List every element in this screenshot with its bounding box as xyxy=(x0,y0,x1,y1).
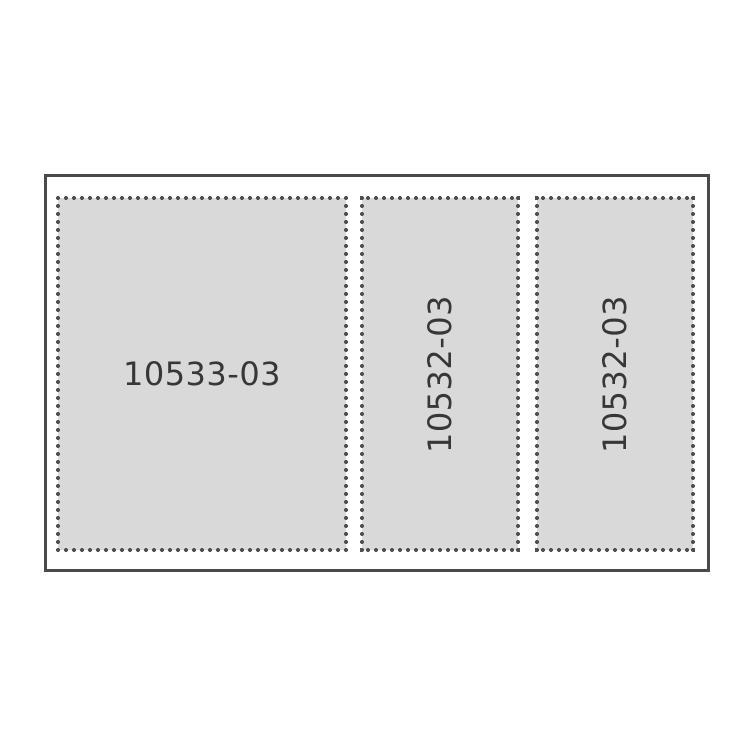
perforation-dots-left xyxy=(535,196,539,552)
panel-label: 10533-03 xyxy=(123,358,281,390)
perforation-dots-right xyxy=(516,196,520,552)
perforation-dots-left xyxy=(56,196,60,552)
die-panel-middle: 10532-03 xyxy=(362,198,518,550)
perforation-dots-right xyxy=(344,196,348,552)
perforation-dots-left xyxy=(360,196,364,552)
perforation-dots-top xyxy=(535,196,695,200)
perforation-dots-right xyxy=(691,196,695,552)
perforation-dots-top xyxy=(360,196,520,200)
perforation-dots-bottom xyxy=(56,548,348,552)
panel-label: 10532-03 xyxy=(599,295,631,453)
die-panel-right: 10532-03 xyxy=(537,198,693,550)
perforation-dots-bottom xyxy=(360,548,520,552)
die-panel-large: 10533-03 xyxy=(58,198,346,550)
perforation-dots-top xyxy=(56,196,348,200)
perforation-dots-bottom xyxy=(535,548,695,552)
panel-label: 10532-03 xyxy=(424,295,456,453)
diagram-canvas: 10533-03 10532-03 10532-03 xyxy=(0,0,752,750)
sheet-outline: 10533-03 10532-03 10532-03 xyxy=(44,174,710,572)
